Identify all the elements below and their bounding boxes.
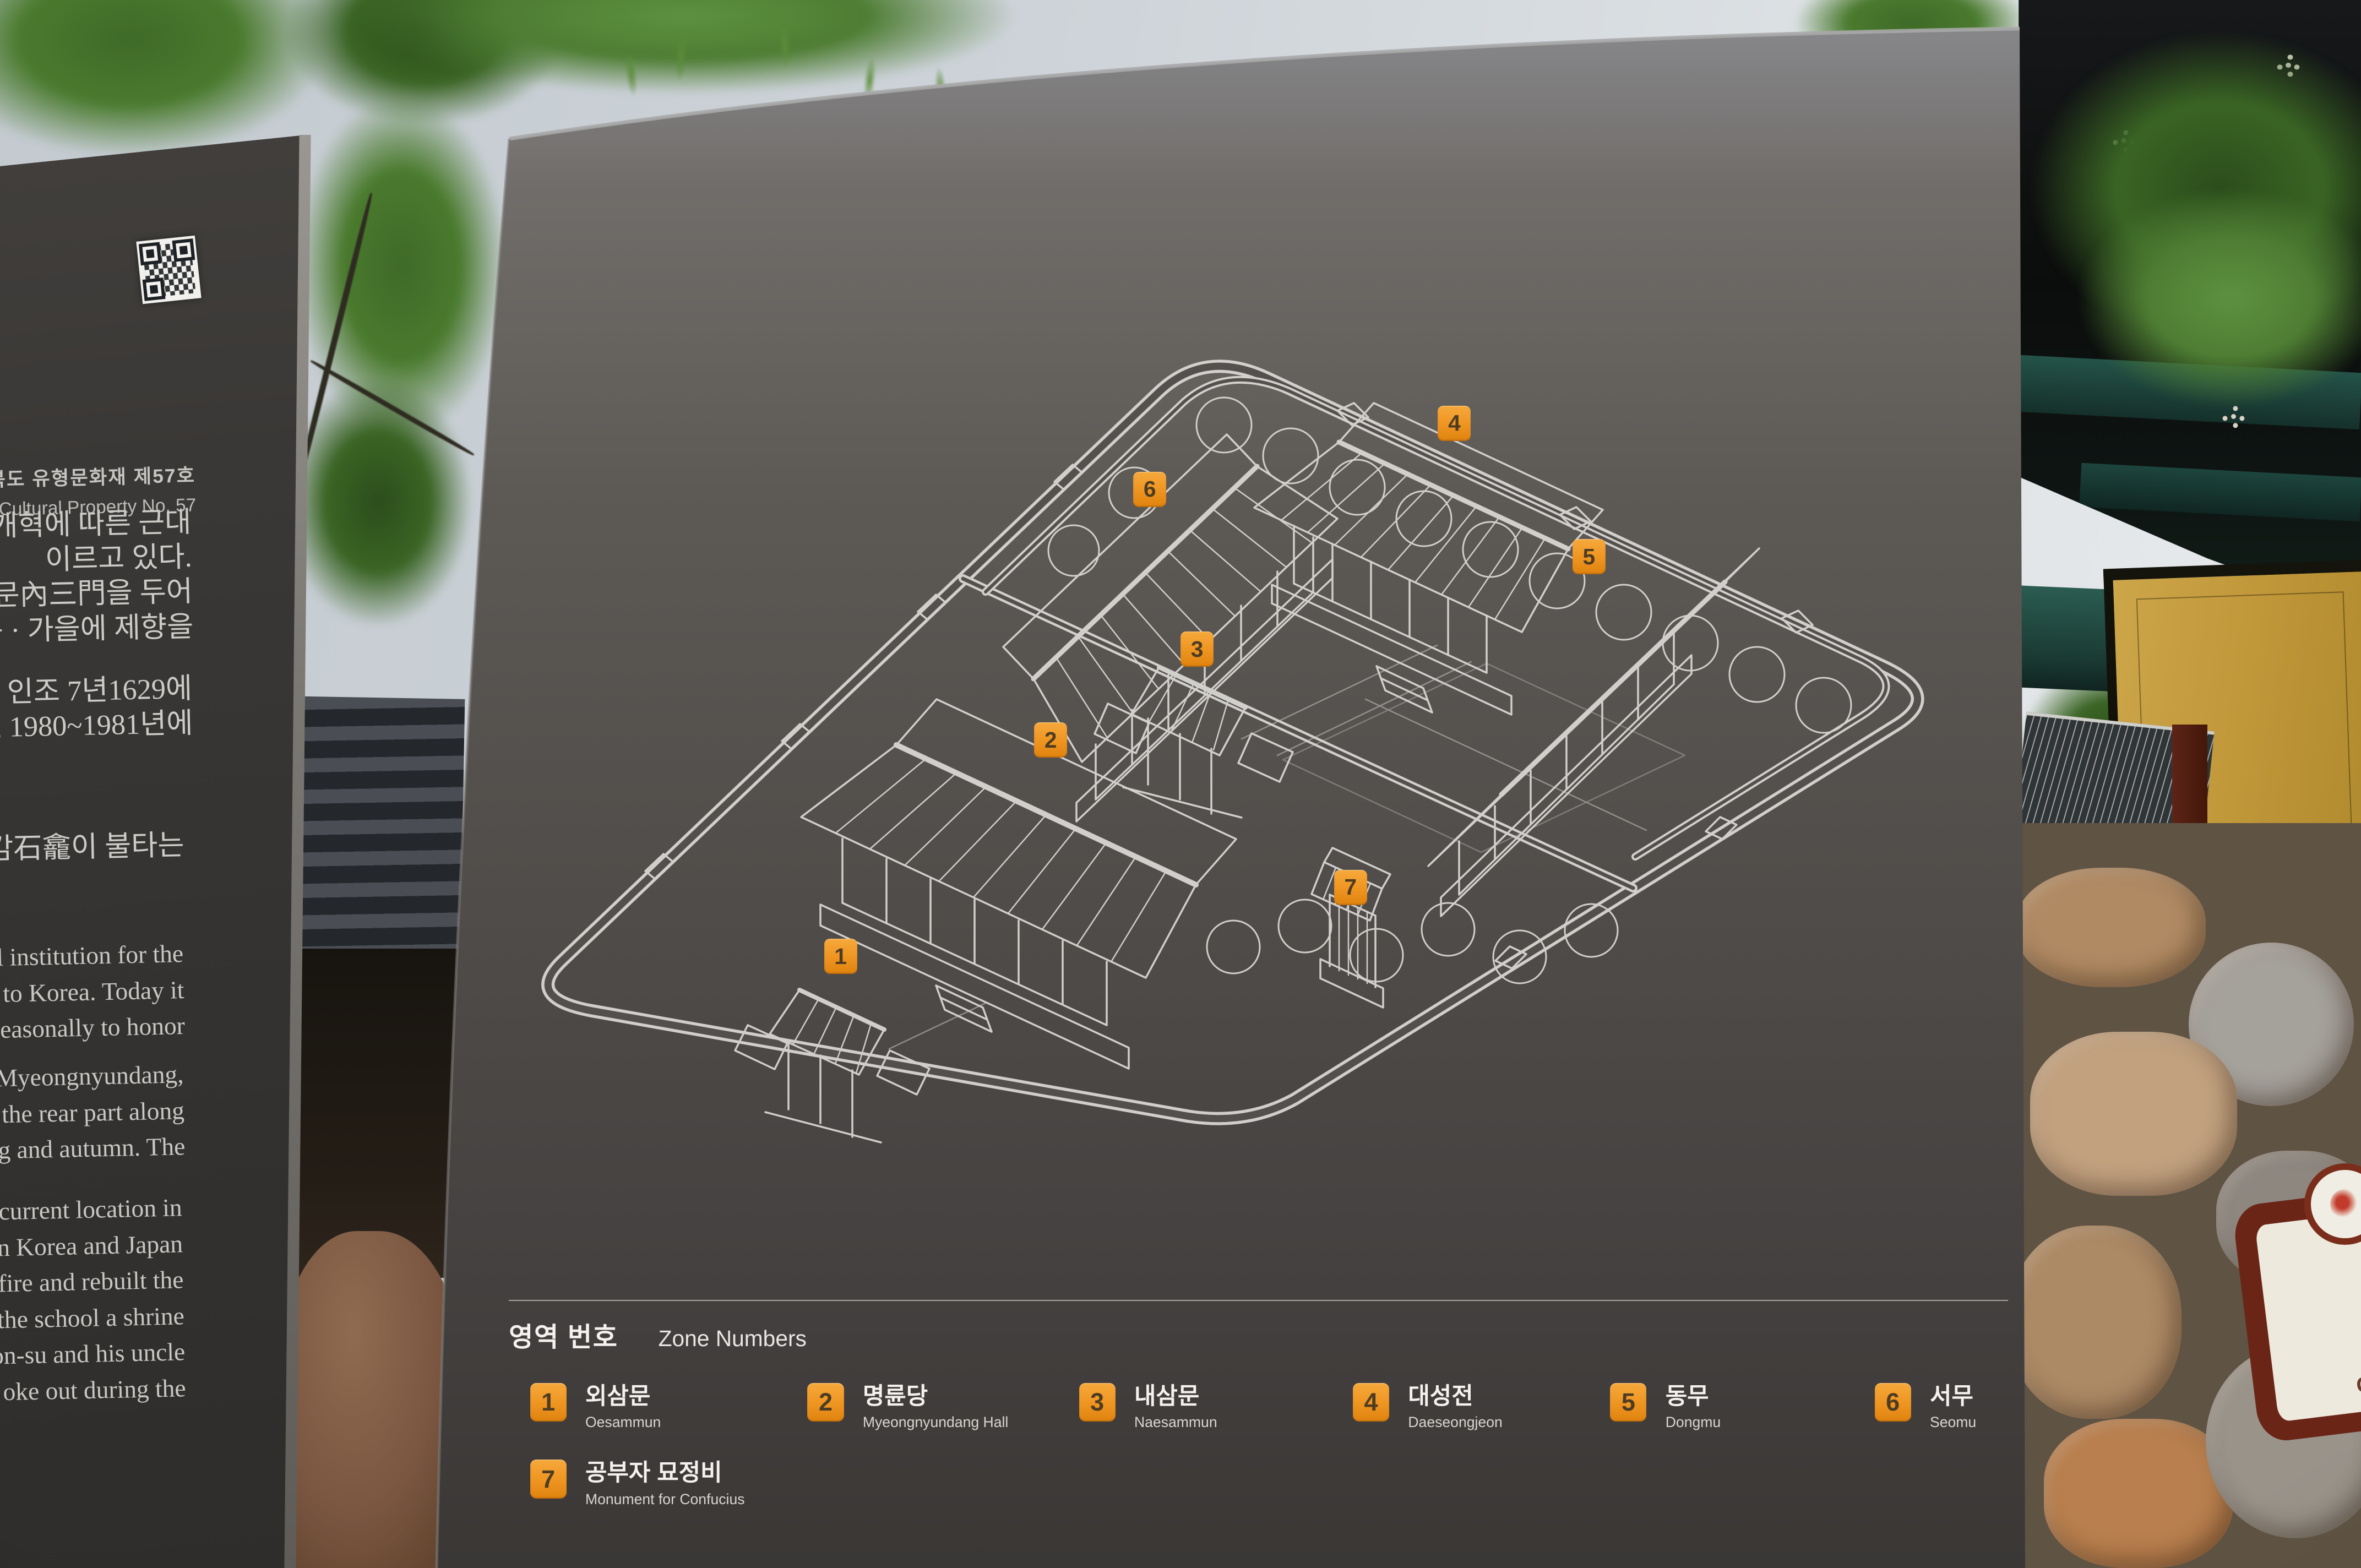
map-zone-badge-2: 2 bbox=[1034, 722, 1067, 758]
legend-title: 영역 번호 Zone Numbers bbox=[509, 1315, 807, 1354]
korean-text-line: 에 내삼문內三門을 두어 bbox=[0, 575, 193, 616]
left-sign-korean-paragraph: 나 갑오개혁에 따른 근대 이르고 있다. 에 내삼문內三門을 두어 고 봄 ·… bbox=[0, 505, 194, 650]
legend-badge-2: 2 bbox=[807, 1383, 844, 1422]
legend-divider bbox=[509, 1300, 2008, 1301]
korean-text-line: 부 석감石龕이 불타는 bbox=[0, 829, 184, 869]
english-text-line: fire and rebuilt the bbox=[0, 1262, 184, 1302]
left-sign-english-paragraph: , Myeongnyundang, n the rear part along … bbox=[0, 1057, 185, 1169]
map-zone-badge-3: 3 bbox=[1180, 631, 1214, 667]
legend-title-korean: 영역 번호 bbox=[509, 1315, 618, 1354]
map-zone-badge-6: 6 bbox=[1133, 472, 1166, 507]
left-sign-english-paragraph: nal institution for the m to Korea. Toda… bbox=[0, 935, 185, 1048]
english-text-line: on-su and his uncle bbox=[0, 1334, 186, 1374]
zone-name-korean: 공부자 묘정비 bbox=[585, 1460, 745, 1487]
zone-name-english: Myeongnyundang Hall bbox=[863, 1414, 1008, 1431]
korean-text-line: 이르고 있다. bbox=[0, 540, 192, 581]
qr-finder-icon bbox=[143, 277, 166, 301]
main-zone-map-board bbox=[0, 0, 2361, 1568]
korean-text-line: 나 갑오개혁에 따른 근대 bbox=[0, 505, 192, 546]
legend-item-oesammun: 1 외삼문 Oesammun bbox=[530, 1383, 661, 1431]
english-text-line: m to Korea. Today it bbox=[0, 972, 184, 1012]
map-zone-badge-4: 4 bbox=[1438, 406, 1471, 441]
korean-text-line: 불타자, 인조 7년1629에 bbox=[0, 671, 192, 712]
zone-name-english: Dongmu bbox=[1666, 1414, 1721, 1431]
map-zone-badge-5: 5 bbox=[1573, 539, 1606, 574]
zone-name-korean: 대성전 bbox=[1408, 1383, 1502, 1410]
zone-name-english: Oesammun bbox=[585, 1414, 661, 1431]
zone-name-english: Seomu bbox=[1930, 1414, 1976, 1431]
zone-name-english: Naesammun bbox=[1134, 1414, 1217, 1431]
map-zone-badge-7: 7 bbox=[1334, 870, 1367, 905]
legend-badge-1: 1 bbox=[530, 1383, 567, 1422]
left-sign-korean-paragraph: 부 석감石龕이 불타는 bbox=[0, 829, 184, 869]
english-text-line: current location in bbox=[0, 1190, 183, 1230]
legend-title-english: Zone Numbers bbox=[659, 1326, 807, 1352]
qr-finder-icon bbox=[139, 242, 162, 265]
zone-name-english: Daeseongjeon bbox=[1408, 1414, 1502, 1431]
zone-name-korean: 내삼문 bbox=[1134, 1383, 1217, 1410]
left-sign-korean-paragraph: 불타자, 인조 7년1629에 고, 1980~1981년에 bbox=[0, 671, 193, 747]
english-text-line: en Korea and Japan bbox=[0, 1226, 183, 1266]
english-text-line: oke out during the bbox=[0, 1370, 187, 1410]
english-text-line: n the rear part along bbox=[0, 1092, 184, 1133]
legend-item-dongmu: 5 동무 Dongmu bbox=[1610, 1383, 1721, 1431]
legend-item-myeongnyundang: 2 명륜당 Myeongnyundang Hall bbox=[807, 1383, 1008, 1431]
english-text-line: seasonally to honor bbox=[0, 1008, 185, 1048]
zone-name-korean: 서무 bbox=[1930, 1383, 1976, 1410]
legend-item-monument: 7 공부자 묘정비 Monument for Confucius bbox=[530, 1460, 745, 1507]
legend-badge-3: 3 bbox=[1079, 1383, 1116, 1422]
qr-code bbox=[136, 236, 202, 304]
map-zone-badge-1: 1 bbox=[824, 939, 857, 974]
zone-name-english: Monument for Confucius bbox=[585, 1491, 745, 1508]
legend-item-daeseongjeon: 4 대성전 Daeseongjeon bbox=[1353, 1383, 1503, 1431]
legend-badge-4: 4 bbox=[1353, 1383, 1389, 1422]
zone-name-korean: 명륜당 bbox=[863, 1383, 1008, 1410]
english-text-line: nal institution for the bbox=[0, 935, 184, 976]
legend-badge-6: 6 bbox=[1875, 1383, 1911, 1422]
corner-sign-english: Gyo bbox=[2355, 1369, 2361, 1398]
legend-item-seomu: 6 서무 Seomu bbox=[1875, 1383, 1977, 1431]
korean-text-line: 고, 1980~1981년에 bbox=[0, 706, 193, 747]
legend-badge-7: 7 bbox=[530, 1460, 567, 1498]
photo-scene: 충청북도 유형문화재 제57호 gible Cultural Property … bbox=[0, 0, 2361, 1568]
zone-name-korean: 동무 bbox=[1666, 1383, 1721, 1410]
english-text-line: the school a shrine bbox=[0, 1298, 185, 1338]
english-text-line: ng and autumn. The bbox=[0, 1129, 185, 1169]
legend-item-naesammun: 3 내삼문 Naesammun bbox=[1079, 1383, 1217, 1431]
registration-korean: 충청북도 유형문화재 제57호 bbox=[0, 460, 196, 493]
english-text-line: , Myeongnyundang, bbox=[0, 1057, 184, 1097]
zone-name-korean: 외삼문 bbox=[585, 1383, 661, 1410]
qr-finder-icon bbox=[172, 238, 195, 262]
korean-text-line: 고 봄 · 가을에 제향을 bbox=[0, 609, 194, 650]
left-sign-english-paragraph: current location in en Korea and Japan f… bbox=[0, 1190, 187, 1410]
legend-badge-5: 5 bbox=[1610, 1383, 1646, 1422]
